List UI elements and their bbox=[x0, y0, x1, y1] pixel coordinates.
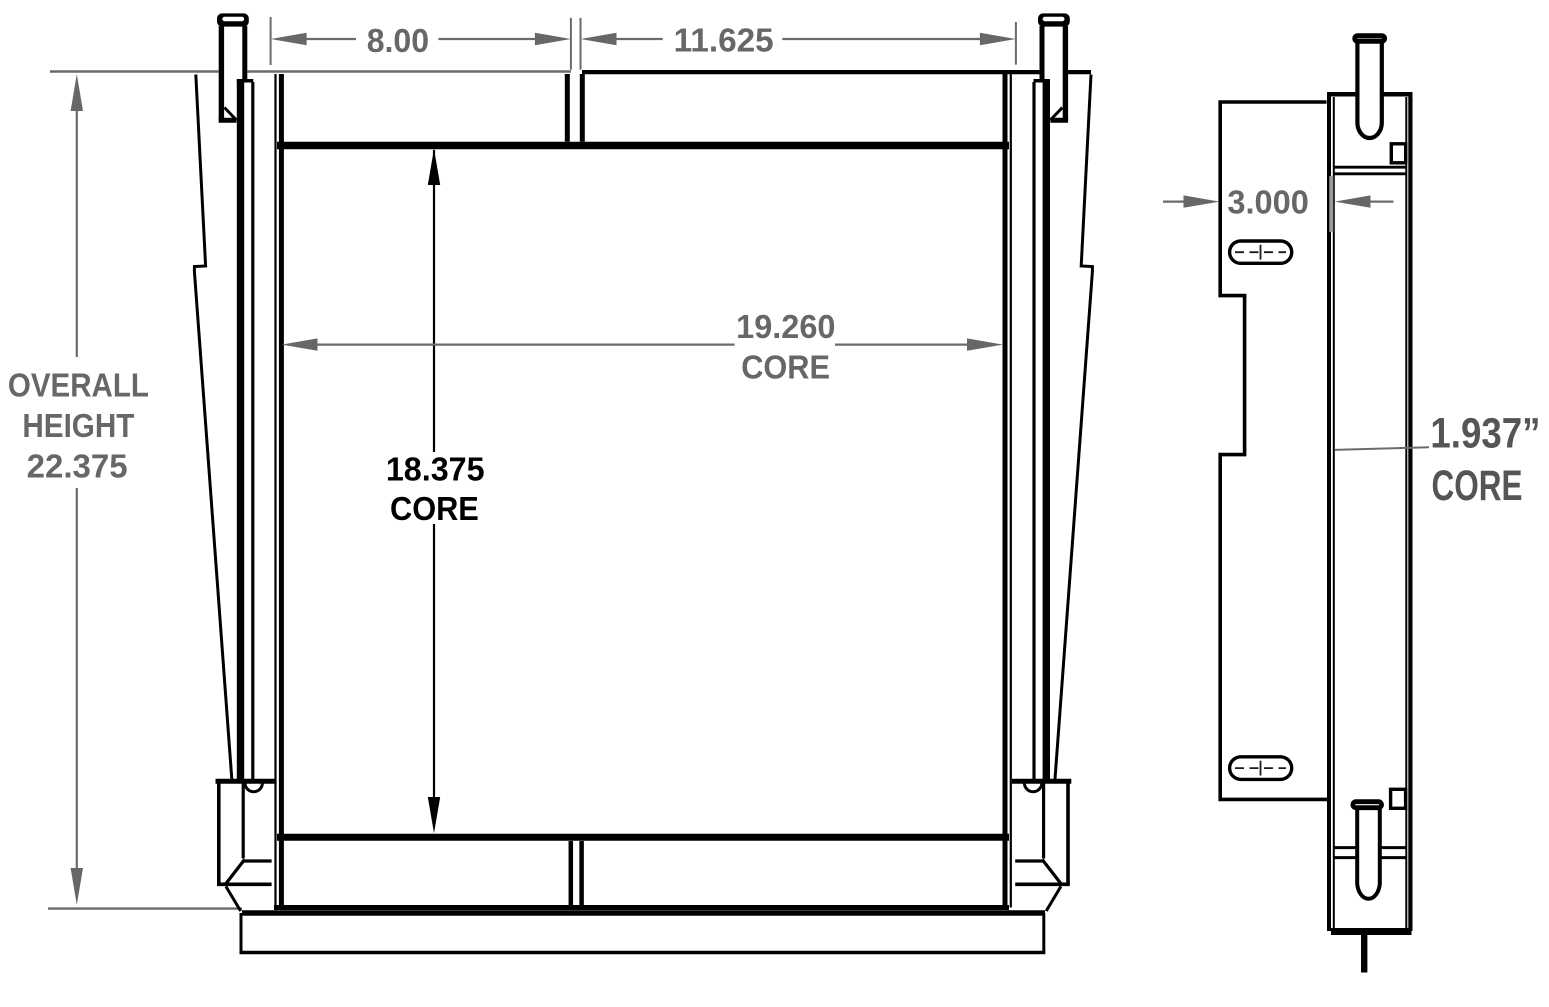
svg-text:18.375: 18.375 bbox=[386, 451, 485, 488]
svg-text:3.000: 3.000 bbox=[1227, 185, 1308, 222]
svg-text:OVERALL: OVERALL bbox=[8, 368, 149, 405]
svg-text:CORE: CORE bbox=[1432, 462, 1523, 510]
svg-text:CORE: CORE bbox=[741, 349, 830, 386]
svg-text:1.937”: 1.937” bbox=[1430, 410, 1540, 458]
svg-text:CORE: CORE bbox=[390, 491, 479, 528]
svg-text:HEIGHT: HEIGHT bbox=[22, 408, 134, 445]
svg-text:22.375: 22.375 bbox=[27, 449, 128, 486]
svg-text:11.625: 11.625 bbox=[674, 23, 774, 60]
svg-text:8.00: 8.00 bbox=[367, 23, 429, 60]
svg-text:19.260: 19.260 bbox=[736, 309, 835, 346]
